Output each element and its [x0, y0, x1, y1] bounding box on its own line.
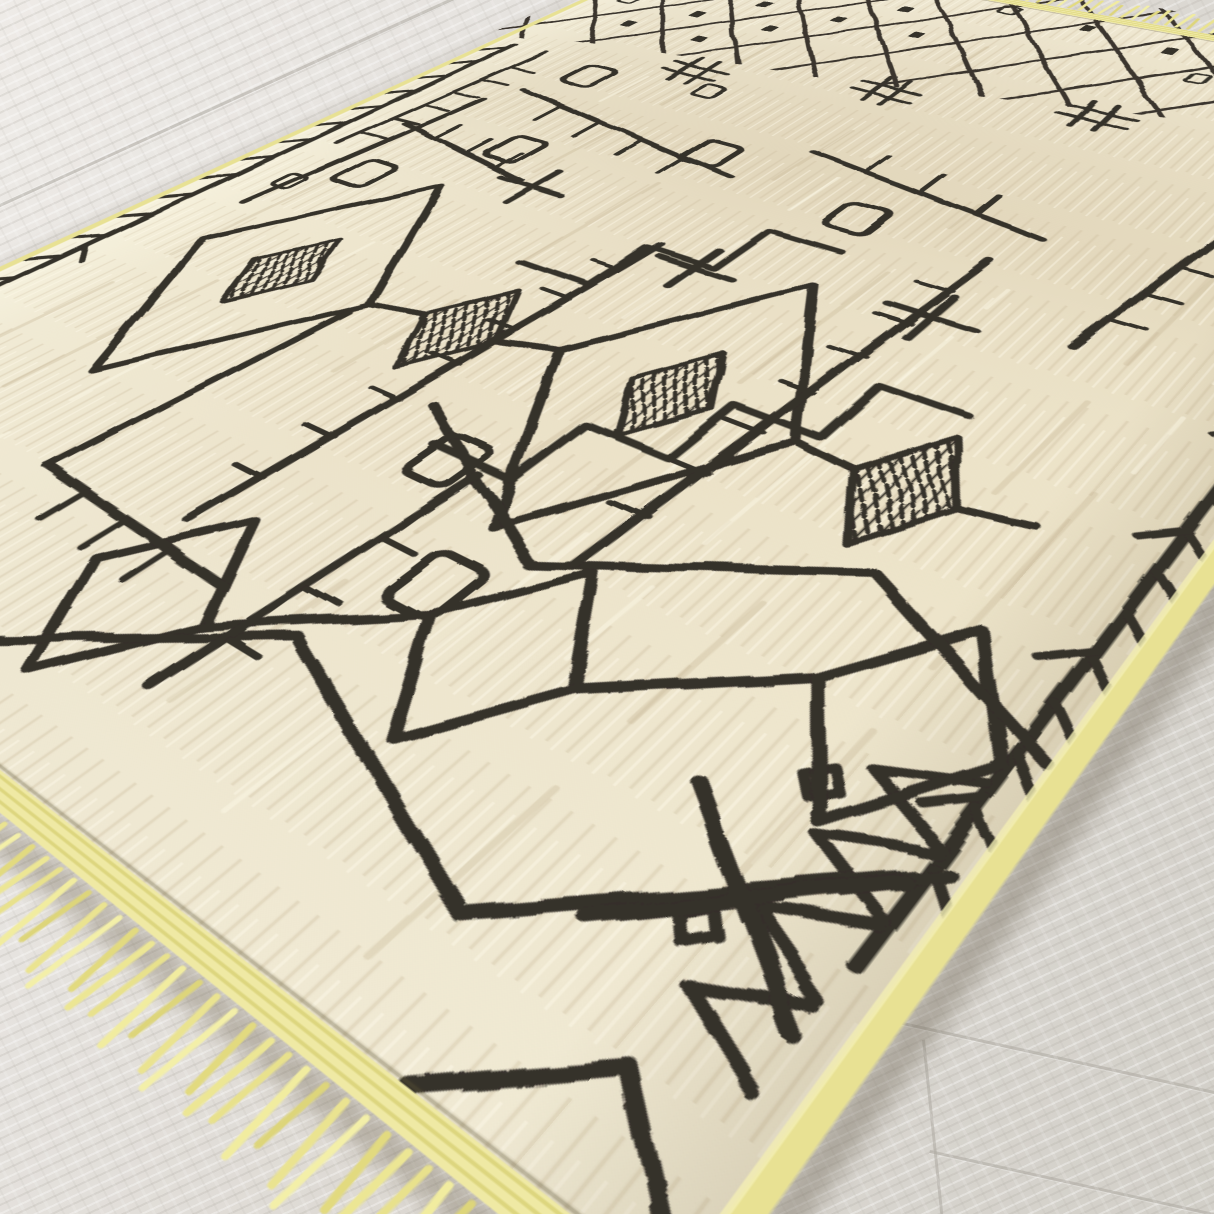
photo-scene [0, 0, 1214, 1214]
floor-plank-seam [929, 1150, 1214, 1214]
floor-plank-seam [922, 1040, 944, 1214]
